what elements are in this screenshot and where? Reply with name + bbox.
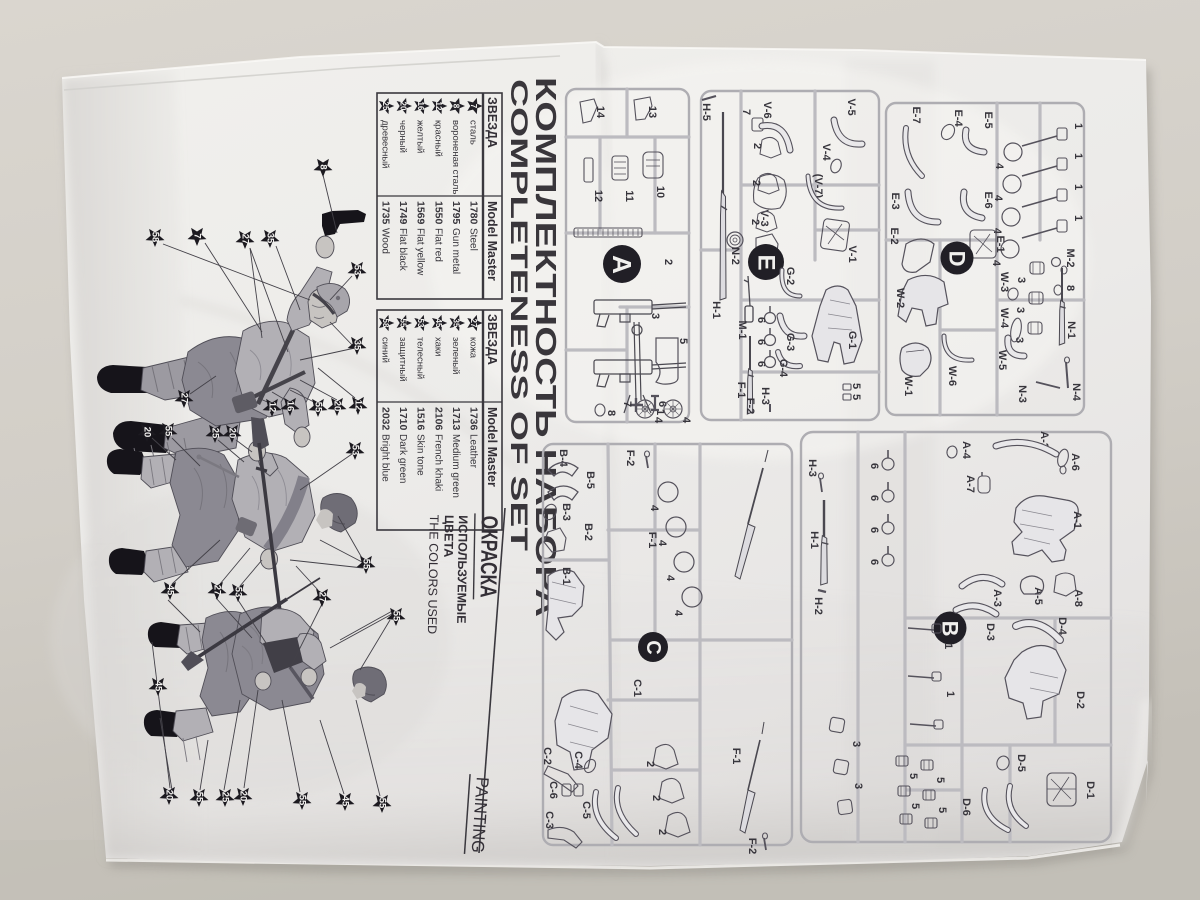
svg-text:6: 6 bbox=[868, 463, 880, 469]
svg-text:35: 35 bbox=[352, 340, 363, 351]
svg-text:COMPLETENESS OF SET: COMPLETENESS OF SET bbox=[505, 79, 532, 552]
svg-text:25: 25 bbox=[210, 428, 221, 439]
svg-text:5: 5 bbox=[936, 807, 948, 813]
svg-text:E: E bbox=[753, 254, 780, 270]
svg-text:20: 20 bbox=[227, 428, 238, 439]
svg-text:Flat red: Flat red bbox=[432, 228, 443, 262]
svg-text:55: 55 bbox=[163, 426, 174, 437]
svg-text:хаки: хаки bbox=[432, 337, 443, 356]
svg-text:1749: 1749 bbox=[397, 201, 409, 225]
svg-text:КОМПЛЕКТНОСТЬ НАБОРА: КОМПЛЕКТНОСТЬ НАБОРА bbox=[529, 77, 561, 617]
svg-text:1: 1 bbox=[1072, 123, 1084, 129]
svg-text:45: 45 bbox=[165, 585, 176, 596]
svg-text:27: 27 bbox=[240, 234, 251, 245]
svg-text:2106: 2106 bbox=[432, 407, 444, 431]
svg-text:4: 4 bbox=[664, 575, 676, 582]
svg-text:25: 25 bbox=[220, 792, 231, 803]
svg-text:W‑3: W‑3 bbox=[998, 272, 1010, 292]
svg-text:C‑6: C‑6 bbox=[547, 781, 559, 799]
svg-text:20: 20 bbox=[142, 427, 153, 438]
svg-text:58: 58 bbox=[381, 319, 390, 328]
svg-text:V‑1: V‑1 bbox=[846, 245, 858, 262]
svg-text:27: 27 bbox=[179, 393, 190, 404]
svg-text:G‑4: G‑4 bbox=[777, 359, 789, 378]
svg-text:Model Master: Model Master bbox=[485, 407, 499, 487]
svg-text:древесный: древесный bbox=[379, 120, 390, 168]
svg-text:53: 53 bbox=[233, 587, 244, 598]
svg-text:D‑5: D‑5 bbox=[1015, 754, 1027, 772]
svg-text:C‑5: C‑5 bbox=[580, 801, 592, 819]
svg-text:16: 16 bbox=[416, 102, 425, 111]
svg-text:F‑1: F‑1 bbox=[730, 748, 742, 765]
svg-text:A‑1: A‑1 bbox=[1071, 511, 1083, 529]
svg-text:желтый: желтый bbox=[415, 120, 426, 153]
svg-text:4: 4 bbox=[991, 228, 1003, 235]
svg-text:H‑2: H‑2 bbox=[812, 597, 824, 615]
svg-text:1550: 1550 bbox=[432, 201, 444, 225]
svg-text:E‑1: E‑1 bbox=[994, 235, 1006, 252]
svg-text:20: 20 bbox=[399, 102, 408, 111]
svg-text:1735: 1735 bbox=[379, 201, 391, 225]
svg-text:Flat black: Flat black bbox=[397, 228, 408, 272]
svg-text:45: 45 bbox=[434, 319, 443, 328]
svg-text:F‑2: F‑2 bbox=[624, 450, 636, 467]
svg-text:12: 12 bbox=[592, 190, 604, 202]
svg-text:W‑2: W‑2 bbox=[894, 288, 906, 308]
svg-text:защитный: защитный bbox=[397, 337, 408, 382]
svg-text:55: 55 bbox=[313, 402, 324, 413]
svg-text:M‑1: M‑1 bbox=[736, 321, 748, 340]
svg-text:2: 2 bbox=[749, 219, 761, 225]
svg-text:1780: 1780 bbox=[468, 201, 480, 225]
svg-text:55: 55 bbox=[361, 559, 372, 570]
svg-text:W‑5: W‑5 bbox=[996, 350, 1008, 370]
svg-text:4: 4 bbox=[652, 417, 664, 424]
svg-text:THE COLORS USED: THE COLORS USED bbox=[425, 515, 441, 635]
svg-text:D‑2: D‑2 bbox=[1074, 691, 1086, 709]
svg-text:черный: черный bbox=[397, 120, 408, 153]
svg-text:5: 5 bbox=[677, 338, 689, 344]
svg-text:2: 2 bbox=[656, 829, 668, 835]
svg-text:5: 5 bbox=[907, 773, 919, 779]
svg-text:синий: синий bbox=[379, 337, 390, 363]
svg-text:E‑4: E‑4 bbox=[952, 109, 964, 127]
svg-text:55: 55 bbox=[194, 792, 205, 803]
svg-text:N‑4: N‑4 bbox=[1070, 383, 1082, 402]
svg-text:4: 4 bbox=[656, 540, 668, 547]
svg-text:H‑5: H‑5 bbox=[700, 103, 712, 121]
svg-text:55: 55 bbox=[399, 319, 408, 328]
svg-text:E‑7: E‑7 bbox=[910, 106, 922, 123]
svg-text:Model Master: Model Master bbox=[485, 201, 499, 281]
svg-text:Wood: Wood bbox=[379, 228, 390, 254]
svg-text:C‑2: C‑2 bbox=[541, 747, 553, 765]
svg-text:A‑7: A‑7 bbox=[964, 475, 976, 493]
svg-text:1: 1 bbox=[1072, 215, 1084, 221]
svg-text:1713: 1713 bbox=[450, 407, 462, 431]
svg-text:4: 4 bbox=[672, 610, 684, 617]
svg-text:6: 6 bbox=[868, 495, 880, 501]
svg-text:C‑1: C‑1 bbox=[631, 679, 643, 697]
svg-text:1: 1 bbox=[1072, 184, 1084, 190]
svg-text:B‑1: B‑1 bbox=[560, 567, 572, 585]
svg-text:D: D bbox=[945, 251, 970, 267]
svg-text:French khaki: French khaki bbox=[432, 434, 443, 491]
svg-text:1516: 1516 bbox=[415, 407, 427, 431]
svg-text:2: 2 bbox=[662, 259, 674, 265]
svg-text:12: 12 bbox=[434, 102, 443, 111]
svg-text:E‑3: E‑3 bbox=[889, 192, 901, 209]
svg-text:ОКРАСКА: ОКРАСКА bbox=[476, 515, 503, 597]
svg-text:53: 53 bbox=[352, 265, 363, 276]
svg-text:H‑3: H‑3 bbox=[806, 459, 818, 477]
svg-text:8: 8 bbox=[318, 164, 329, 169]
svg-text:1: 1 bbox=[944, 691, 956, 697]
svg-text:4: 4 bbox=[993, 163, 1005, 170]
svg-text:11: 11 bbox=[623, 190, 635, 202]
svg-text:6: 6 bbox=[755, 317, 767, 323]
svg-text:7: 7 bbox=[469, 104, 478, 109]
svg-text:6: 6 bbox=[868, 559, 880, 565]
svg-text:8: 8 bbox=[452, 104, 461, 109]
svg-text:B‑3: B‑3 bbox=[560, 503, 572, 521]
svg-text:C‑4: C‑4 bbox=[572, 751, 584, 770]
svg-text:20: 20 bbox=[238, 791, 249, 802]
svg-text:ЗВЕЗДА: ЗВЕЗДА bbox=[485, 97, 499, 148]
svg-text:W‑6: W‑6 bbox=[946, 366, 958, 386]
svg-text:3: 3 bbox=[852, 783, 864, 789]
svg-text:C: C bbox=[642, 640, 664, 654]
svg-text:1710: 1710 bbox=[397, 407, 409, 431]
svg-text:B‑4: B‑4 bbox=[557, 449, 569, 468]
svg-text:4: 4 bbox=[680, 417, 692, 424]
svg-text:13: 13 bbox=[646, 106, 658, 118]
svg-text:H‑1: H‑1 bbox=[808, 531, 820, 549]
svg-text:55: 55 bbox=[391, 611, 402, 622]
svg-text:N‑3: N‑3 bbox=[1016, 385, 1028, 403]
svg-text:Skin tone: Skin tone bbox=[415, 434, 426, 476]
svg-text:35: 35 bbox=[452, 319, 461, 328]
svg-text:3: 3 bbox=[1015, 277, 1027, 283]
svg-text:6: 6 bbox=[755, 361, 767, 367]
svg-text:Leather: Leather bbox=[468, 434, 479, 469]
svg-text:7: 7 bbox=[192, 233, 203, 238]
svg-text:14: 14 bbox=[594, 106, 606, 119]
svg-text:Medium green: Medium green bbox=[450, 434, 461, 498]
svg-text:D‑6: D‑6 bbox=[960, 798, 972, 816]
svg-text:H‑3: H‑3 bbox=[759, 387, 771, 405]
svg-text:27: 27 bbox=[317, 592, 328, 603]
svg-text:V‑6: V‑6 bbox=[761, 101, 773, 118]
svg-text:ЗВЕЗДА: ЗВЕЗДА bbox=[485, 314, 499, 365]
svg-text:Gun metal: Gun metal bbox=[450, 228, 461, 274]
svg-text:1795: 1795 bbox=[450, 201, 462, 225]
svg-text:1: 1 bbox=[1072, 153, 1084, 159]
svg-text:3: 3 bbox=[1014, 307, 1026, 313]
svg-text:7: 7 bbox=[740, 109, 752, 115]
svg-text:12: 12 bbox=[353, 400, 364, 411]
svg-text:кожа: кожа bbox=[468, 337, 479, 359]
svg-text:A‑6: A‑6 bbox=[1069, 453, 1081, 471]
svg-text:4: 4 bbox=[648, 505, 660, 512]
svg-text:58: 58 bbox=[150, 232, 161, 243]
svg-text:6: 6 bbox=[755, 339, 767, 345]
svg-text:6: 6 bbox=[868, 527, 880, 533]
svg-text:4: 4 bbox=[990, 260, 1002, 267]
svg-text:55: 55 bbox=[297, 795, 308, 806]
svg-text:10: 10 bbox=[654, 186, 666, 198]
svg-text:5: 5 bbox=[934, 777, 946, 783]
svg-text:5: 5 bbox=[850, 383, 862, 389]
svg-text:N‑1: N‑1 bbox=[1065, 321, 1077, 339]
svg-text:F‑1: F‑1 bbox=[735, 382, 747, 399]
svg-text:27: 27 bbox=[212, 585, 223, 596]
svg-text:C‑3: C‑3 bbox=[543, 811, 555, 829]
svg-text:2: 2 bbox=[751, 143, 763, 149]
svg-text:B‑2: B‑2 bbox=[582, 523, 594, 541]
svg-text:Flat yellow: Flat yellow bbox=[415, 228, 426, 276]
svg-text:N‑2: N‑2 bbox=[729, 247, 741, 265]
svg-text:Dark green: Dark green bbox=[397, 434, 408, 483]
svg-text:G‑2: G‑2 bbox=[784, 267, 796, 285]
svg-text:5: 5 bbox=[850, 394, 862, 400]
svg-text:красный: красный bbox=[432, 120, 443, 157]
svg-text:5: 5 bbox=[909, 803, 921, 809]
svg-text:A‑5: A‑5 bbox=[1032, 587, 1044, 605]
svg-text:W‑1: W‑1 bbox=[902, 376, 914, 396]
svg-text:F‑2: F‑2 bbox=[746, 838, 758, 855]
svg-text:3: 3 bbox=[850, 741, 862, 747]
svg-text:A‑4: A‑4 bbox=[960, 441, 972, 460]
svg-text:45: 45 bbox=[153, 681, 164, 692]
svg-text:20: 20 bbox=[332, 401, 343, 412]
svg-text:45: 45 bbox=[340, 796, 351, 807]
svg-text:G‑3: G‑3 bbox=[784, 333, 796, 351]
svg-text:M‑2: M‑2 bbox=[1064, 249, 1076, 268]
svg-text:27: 27 bbox=[469, 319, 478, 328]
svg-text:35: 35 bbox=[265, 233, 276, 244]
svg-text:8: 8 bbox=[1064, 285, 1076, 291]
svg-text:зеленый: зеленый bbox=[450, 337, 461, 374]
svg-text:12: 12 bbox=[267, 402, 278, 413]
svg-text:Steel: Steel bbox=[468, 228, 479, 251]
svg-text:1: 1 bbox=[942, 643, 954, 649]
svg-text:1736: 1736 bbox=[468, 407, 480, 431]
svg-text:2: 2 bbox=[644, 761, 656, 767]
svg-text:телесный: телесный bbox=[415, 337, 426, 379]
svg-text:B‑5: B‑5 bbox=[584, 471, 596, 489]
svg-text:25: 25 bbox=[381, 102, 390, 111]
svg-text:E‑2: E‑2 bbox=[888, 227, 900, 244]
svg-text:D‑1: D‑1 bbox=[1084, 781, 1096, 799]
svg-text:7: 7 bbox=[621, 401, 633, 407]
svg-text:E‑6: E‑6 bbox=[982, 191, 994, 208]
svg-text:V‑4: V‑4 bbox=[820, 143, 832, 161]
svg-text:16: 16 bbox=[285, 401, 296, 412]
svg-text:Bright blue: Bright blue bbox=[379, 434, 390, 482]
svg-text:2032: 2032 bbox=[379, 407, 391, 431]
svg-text:ЦВЕТА: ЦВЕТА bbox=[441, 515, 456, 558]
svg-text:8: 8 bbox=[605, 410, 617, 416]
svg-text:1569: 1569 bbox=[415, 201, 427, 225]
svg-text:E‑5: E‑5 bbox=[982, 111, 994, 128]
svg-text:55: 55 bbox=[377, 798, 388, 809]
svg-text:2: 2 bbox=[650, 795, 662, 801]
svg-text:сталь: сталь bbox=[468, 120, 479, 145]
svg-text:W‑4: W‑4 bbox=[998, 308, 1010, 329]
svg-text:H‑1: H‑1 bbox=[710, 301, 722, 319]
svg-text:2: 2 bbox=[750, 180, 762, 186]
svg-text:F‑2: F‑2 bbox=[744, 398, 756, 415]
svg-text:3: 3 bbox=[649, 313, 661, 319]
svg-text:V‑5: V‑5 bbox=[845, 98, 857, 115]
svg-text:вороненая сталь: вороненая сталь bbox=[450, 120, 461, 194]
svg-text:53: 53 bbox=[350, 445, 361, 456]
svg-text:A‑3: A‑3 bbox=[991, 589, 1003, 607]
svg-text:A: A bbox=[607, 255, 637, 274]
svg-text:53: 53 bbox=[416, 319, 425, 328]
svg-text:20: 20 bbox=[164, 790, 175, 801]
svg-text:D‑3: D‑3 bbox=[984, 623, 996, 641]
svg-text:G‑1: G‑1 bbox=[846, 331, 858, 349]
